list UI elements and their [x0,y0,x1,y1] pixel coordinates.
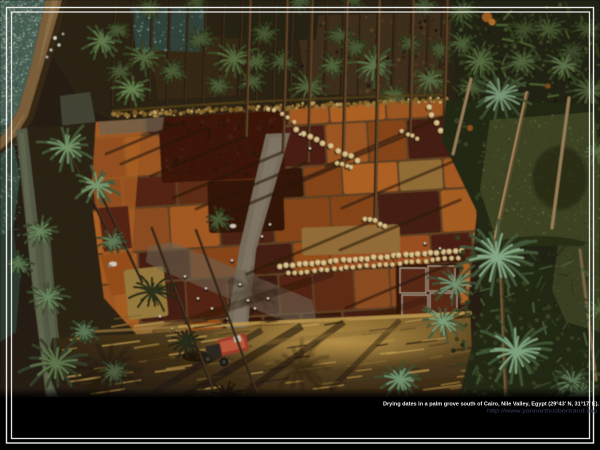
svg-text:Drying dates in a palm grove s: Drying dates in a palm grove south of Ca… [383,402,599,408]
svg-text:http://www.yannarthusbertrand.: http://www.yannarthusbertrand.org [487,409,597,415]
